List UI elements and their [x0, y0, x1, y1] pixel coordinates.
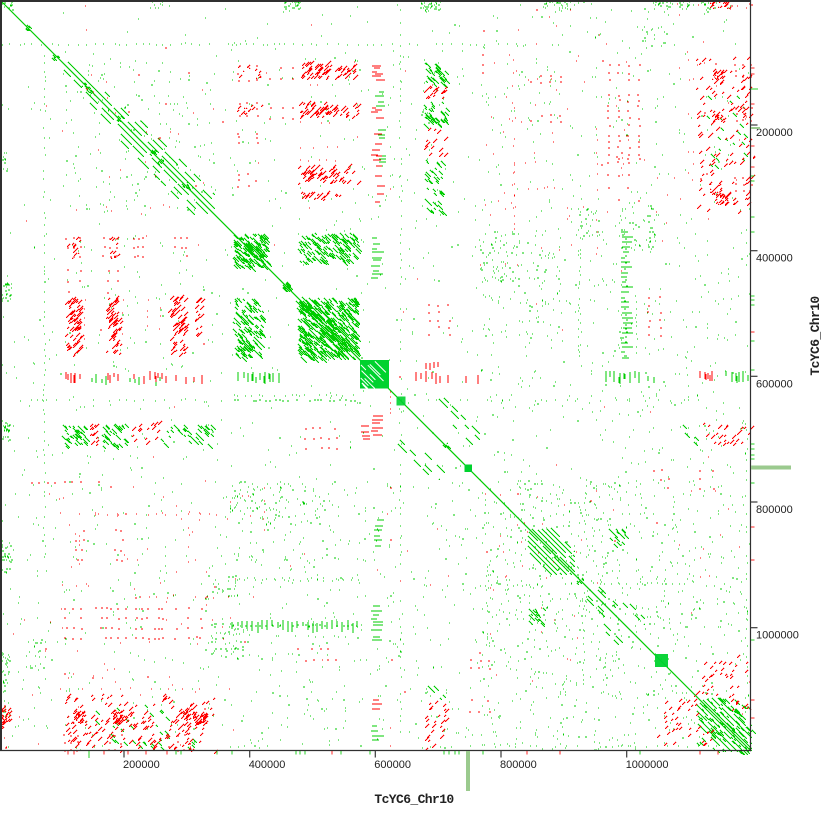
- svg-text:200000: 200000: [756, 127, 793, 139]
- svg-text:800000: 800000: [500, 759, 537, 771]
- svg-text:200000: 200000: [123, 759, 160, 771]
- svg-text:1000000: 1000000: [626, 759, 669, 771]
- svg-text:TcYC6_Chr10: TcYC6_Chr10: [374, 792, 454, 807]
- svg-text:1000000: 1000000: [756, 630, 799, 642]
- svg-text:600000: 600000: [756, 378, 793, 390]
- svg-text:400000: 400000: [756, 253, 793, 265]
- svg-text:400000: 400000: [249, 759, 286, 771]
- svg-text:800000: 800000: [756, 504, 793, 516]
- svg-text:TcYC6_Chr10: TcYC6_Chr10: [808, 296, 823, 376]
- svg-text:600000: 600000: [374, 759, 411, 771]
